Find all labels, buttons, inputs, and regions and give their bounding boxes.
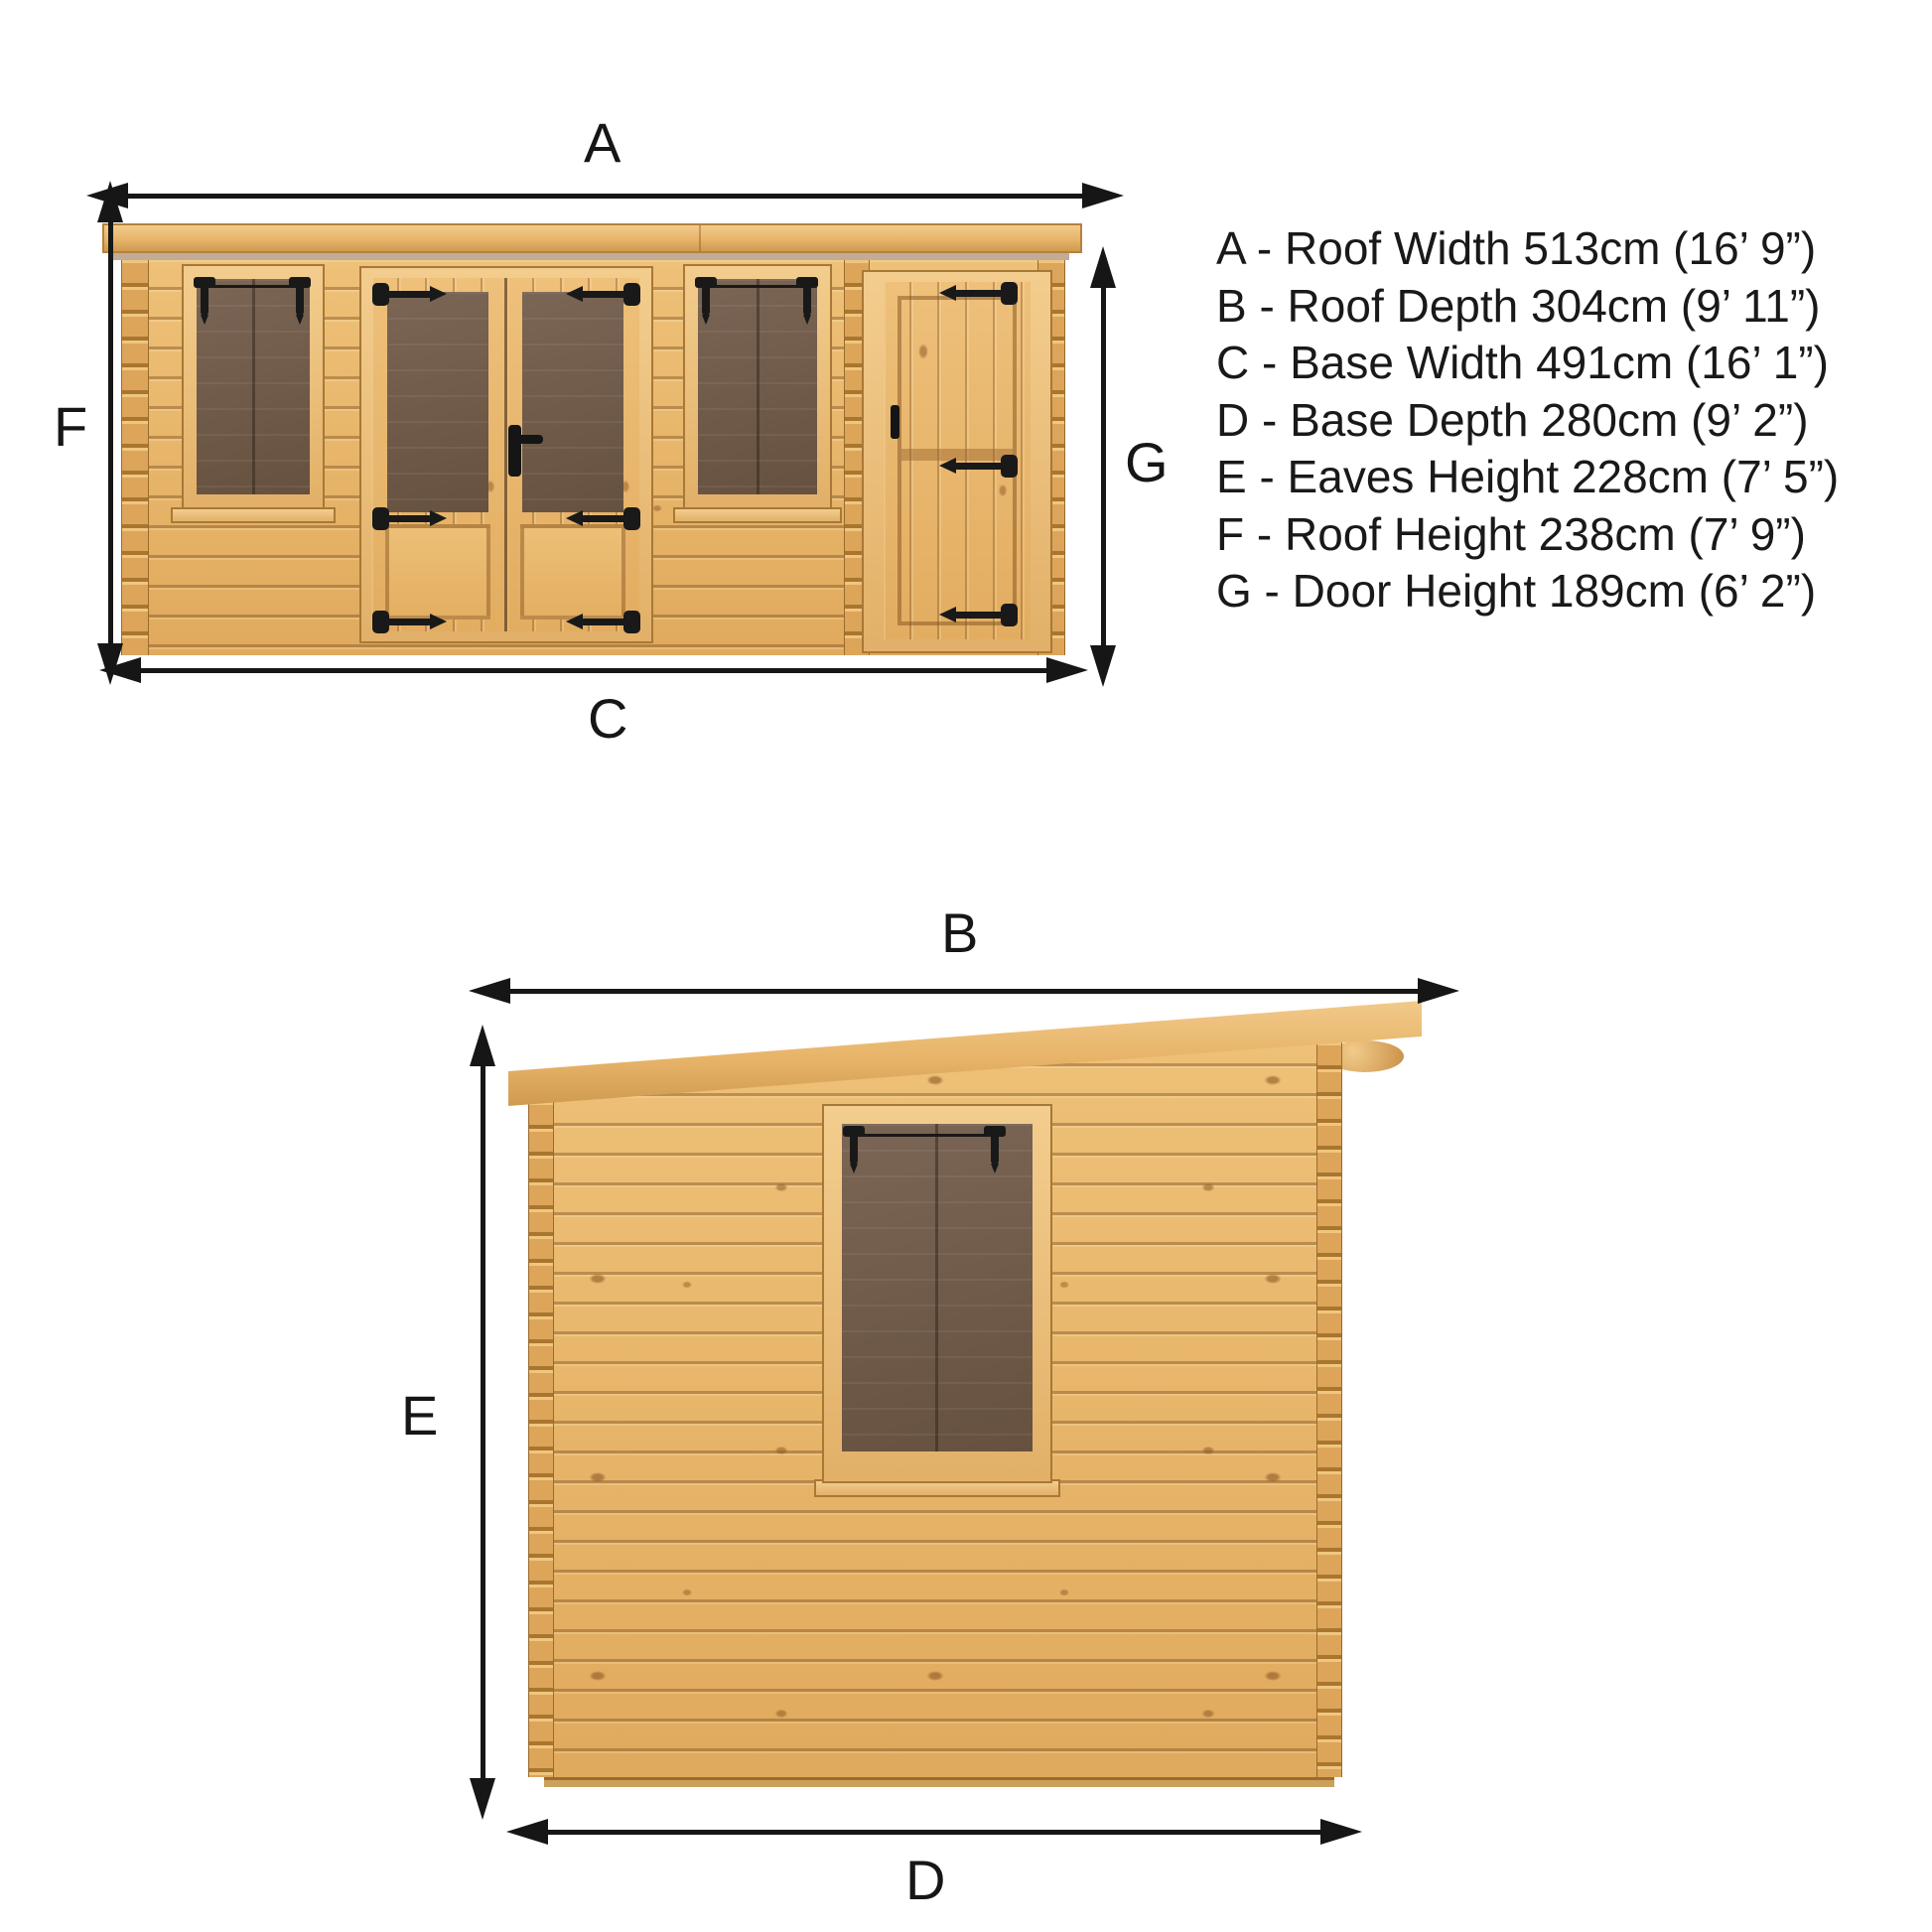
side-right-log-corner <box>1316 1042 1342 1777</box>
legend-item-roof-width: A - Roof Width 513cm (16’ 9”) <box>1216 220 1839 278</box>
dim-arrow-roof-width <box>126 194 1084 199</box>
side-window-hinge-rod-icon <box>852 1134 997 1137</box>
door-hinge-icon <box>377 619 431 625</box>
legend-item-eaves-height: E - Eaves Height 228cm (7’ 5”) <box>1216 449 1839 506</box>
dim-label-roof-height: F <box>54 399 87 455</box>
dim-arrow-door-height <box>1101 286 1106 647</box>
front-double-door-left-panel <box>385 524 490 620</box>
dim-label-base-width: C <box>588 691 627 747</box>
side-window-mullion <box>935 1124 938 1451</box>
front-double-door-right-panel <box>520 524 625 620</box>
front-double-door-gap <box>504 278 507 631</box>
front-left-window-hinge-icon <box>201 286 208 316</box>
legend-item-door-height: G - Door Height 189cm (6’ 2”) <box>1216 563 1839 621</box>
legend-item-roof-depth: B - Roof Depth 304cm (9’ 11”) <box>1216 278 1839 336</box>
door-hinge-icon <box>377 291 431 298</box>
door-hinge-icon <box>955 612 1013 619</box>
door-handle-icon <box>508 425 521 477</box>
side-window-hinge-icon <box>991 1135 999 1165</box>
door-hinge-icon <box>377 515 431 522</box>
front-roof <box>102 223 1082 253</box>
front-left-window-hinge-icon <box>296 286 304 316</box>
side-window-hinge-icon <box>850 1135 858 1165</box>
front-right-window-mullion <box>757 279 759 494</box>
door-lever-icon <box>517 435 543 444</box>
dim-arrow-roof-depth <box>508 989 1420 994</box>
front-roof-shadow <box>113 253 1069 260</box>
door-hinge-icon <box>955 463 1013 470</box>
legend-item-base-depth: D - Base Depth 280cm (9’ 2”) <box>1216 392 1839 450</box>
front-double-door-left-glass <box>387 292 488 512</box>
legend-item-base-width: C - Base Width 491cm (16’ 1”) <box>1216 335 1839 392</box>
front-left-window-mullion <box>252 279 255 494</box>
dimension-diagram: A F C G A - Roof Width 513cm (16’ 9”) B … <box>0 0 1932 1932</box>
side-base-skid <box>544 1777 1334 1787</box>
front-left-log-corner <box>121 260 149 655</box>
dim-label-roof-width: A <box>584 115 621 171</box>
dim-arrow-base-width <box>139 668 1048 673</box>
side-left-log-corner <box>528 1102 554 1777</box>
legend: A - Roof Width 513cm (16’ 9”) B - Roof D… <box>1216 220 1839 621</box>
annexe-door-handle-icon <box>891 405 899 439</box>
door-hinge-icon <box>955 290 1013 297</box>
annexe-door-midrail <box>901 449 1013 461</box>
front-left-window-sill <box>171 507 336 523</box>
dim-label-roof-depth: B <box>941 905 978 961</box>
front-right-window-hinge-icon <box>702 286 710 316</box>
dim-arrow-base-depth <box>546 1830 1322 1835</box>
door-hinge-icon <box>582 515 635 522</box>
front-right-window-hinge-icon <box>803 286 811 316</box>
dim-label-base-depth: D <box>905 1853 945 1908</box>
dim-arrow-eaves-height <box>481 1064 485 1780</box>
front-right-window-hinge-rod-icon <box>705 285 810 288</box>
dim-label-eaves-height: E <box>401 1388 438 1444</box>
legend-item-roof-height: F - Roof Height 238cm (7’ 9”) <box>1216 506 1839 564</box>
front-right-window-sill <box>673 507 842 523</box>
front-double-door-right-glass <box>522 292 623 512</box>
dim-label-door-height: G <box>1125 435 1169 490</box>
door-hinge-icon <box>582 619 635 625</box>
annexe-door-bead <box>897 296 1017 625</box>
door-hinge-icon <box>582 291 635 298</box>
front-roof-seam <box>699 225 701 251</box>
dim-arrow-roof-height <box>108 220 113 645</box>
